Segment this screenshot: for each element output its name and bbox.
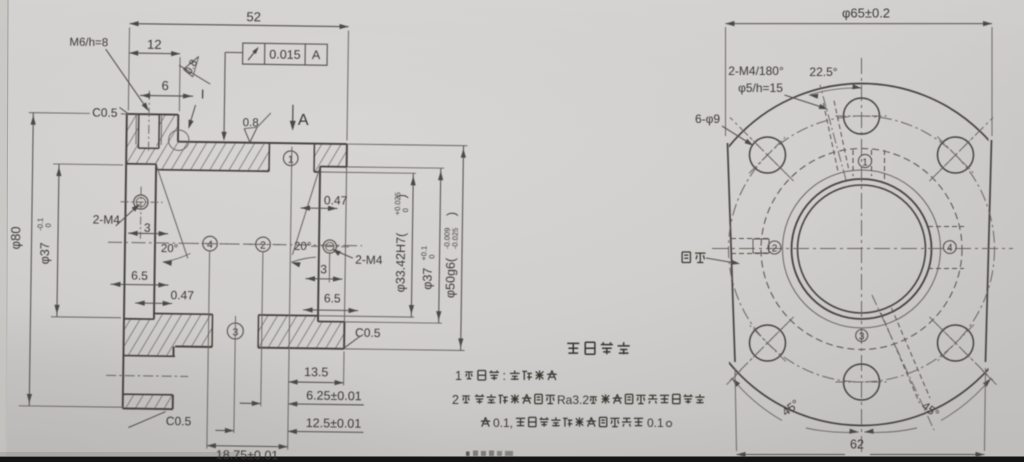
svg-text:13.5: 13.5 bbox=[304, 365, 329, 379]
svg-text::: : bbox=[503, 369, 506, 383]
svg-text:52: 52 bbox=[246, 9, 261, 24]
svg-text:0.8: 0.8 bbox=[243, 117, 259, 129]
svg-text:6-φ9: 6-φ9 bbox=[695, 112, 720, 126]
svg-text:0.015: 0.015 bbox=[269, 47, 301, 61]
svg-text:M6/h=8: M6/h=8 bbox=[69, 37, 108, 50]
svg-text:2-M4: 2-M4 bbox=[355, 253, 383, 267]
svg-text:-0.025: -0.025 bbox=[450, 228, 459, 249]
svg-text:6.5: 6.5 bbox=[324, 291, 341, 305]
svg-text:φ37: φ37 bbox=[38, 242, 52, 264]
svg-text:3: 3 bbox=[320, 262, 327, 276]
svg-text:0.47: 0.47 bbox=[324, 193, 348, 207]
svg-text:): ) bbox=[395, 194, 409, 198]
svg-text:0.47: 0.47 bbox=[171, 288, 195, 302]
svg-text:6.5: 6.5 bbox=[131, 269, 148, 283]
svg-text:φ33.42H7(: φ33.42H7( bbox=[393, 232, 408, 293]
svg-text:0: 0 bbox=[401, 208, 410, 212]
svg-text:0.1: 0.1 bbox=[647, 416, 664, 430]
svg-text:62: 62 bbox=[850, 438, 864, 452]
svg-text:12: 12 bbox=[147, 37, 162, 52]
svg-text:φ5/h=15: φ5/h=15 bbox=[738, 81, 783, 95]
svg-text:20°: 20° bbox=[294, 241, 312, 253]
svg-text:18.75±0.01: 18.75±0.01 bbox=[216, 448, 279, 462]
svg-text:0.1,: 0.1, bbox=[493, 416, 513, 430]
svg-text:0: 0 bbox=[427, 255, 436, 259]
svg-text:22.5°: 22.5° bbox=[809, 65, 837, 79]
svg-text:Ra3.2: Ra3.2 bbox=[557, 393, 589, 407]
svg-text:φ80: φ80 bbox=[8, 226, 23, 249]
svg-text:12.5±0.01: 12.5±0.01 bbox=[306, 416, 362, 431]
svg-text:1: 1 bbox=[862, 157, 868, 168]
svg-text:C0.5: C0.5 bbox=[355, 326, 381, 340]
svg-text:φ65±0.2: φ65±0.2 bbox=[842, 6, 890, 21]
svg-text:0: 0 bbox=[44, 223, 53, 227]
svg-text:C0.5: C0.5 bbox=[92, 105, 118, 119]
svg-text:C0.5: C0.5 bbox=[166, 414, 192, 428]
svg-text:4: 4 bbox=[947, 243, 953, 254]
svg-text:A: A bbox=[312, 48, 321, 62]
svg-text:3: 3 bbox=[144, 221, 151, 235]
svg-text:3: 3 bbox=[859, 332, 865, 343]
svg-text:2-M4: 2-M4 bbox=[93, 213, 121, 227]
svg-text:2: 2 bbox=[452, 393, 459, 407]
svg-text:2: 2 bbox=[772, 244, 778, 255]
svg-text:20°: 20° bbox=[161, 243, 179, 255]
svg-text:φ37: φ37 bbox=[420, 268, 434, 290]
svg-text:A: A bbox=[298, 112, 309, 129]
svg-text:2-M4/180°: 2-M4/180° bbox=[728, 64, 784, 78]
svg-text:1: 1 bbox=[455, 369, 462, 383]
svg-text:): ) bbox=[444, 212, 458, 216]
svg-text:I: I bbox=[201, 87, 205, 102]
svg-text:6.25±0.01: 6.25±0.01 bbox=[306, 389, 362, 404]
svg-text:1: 1 bbox=[288, 154, 294, 166]
svg-text:6: 6 bbox=[161, 78, 168, 93]
svg-text:4: 4 bbox=[207, 239, 213, 251]
svg-text:2: 2 bbox=[260, 240, 266, 252]
svg-text:φ50g6(: φ50g6( bbox=[443, 257, 458, 298]
